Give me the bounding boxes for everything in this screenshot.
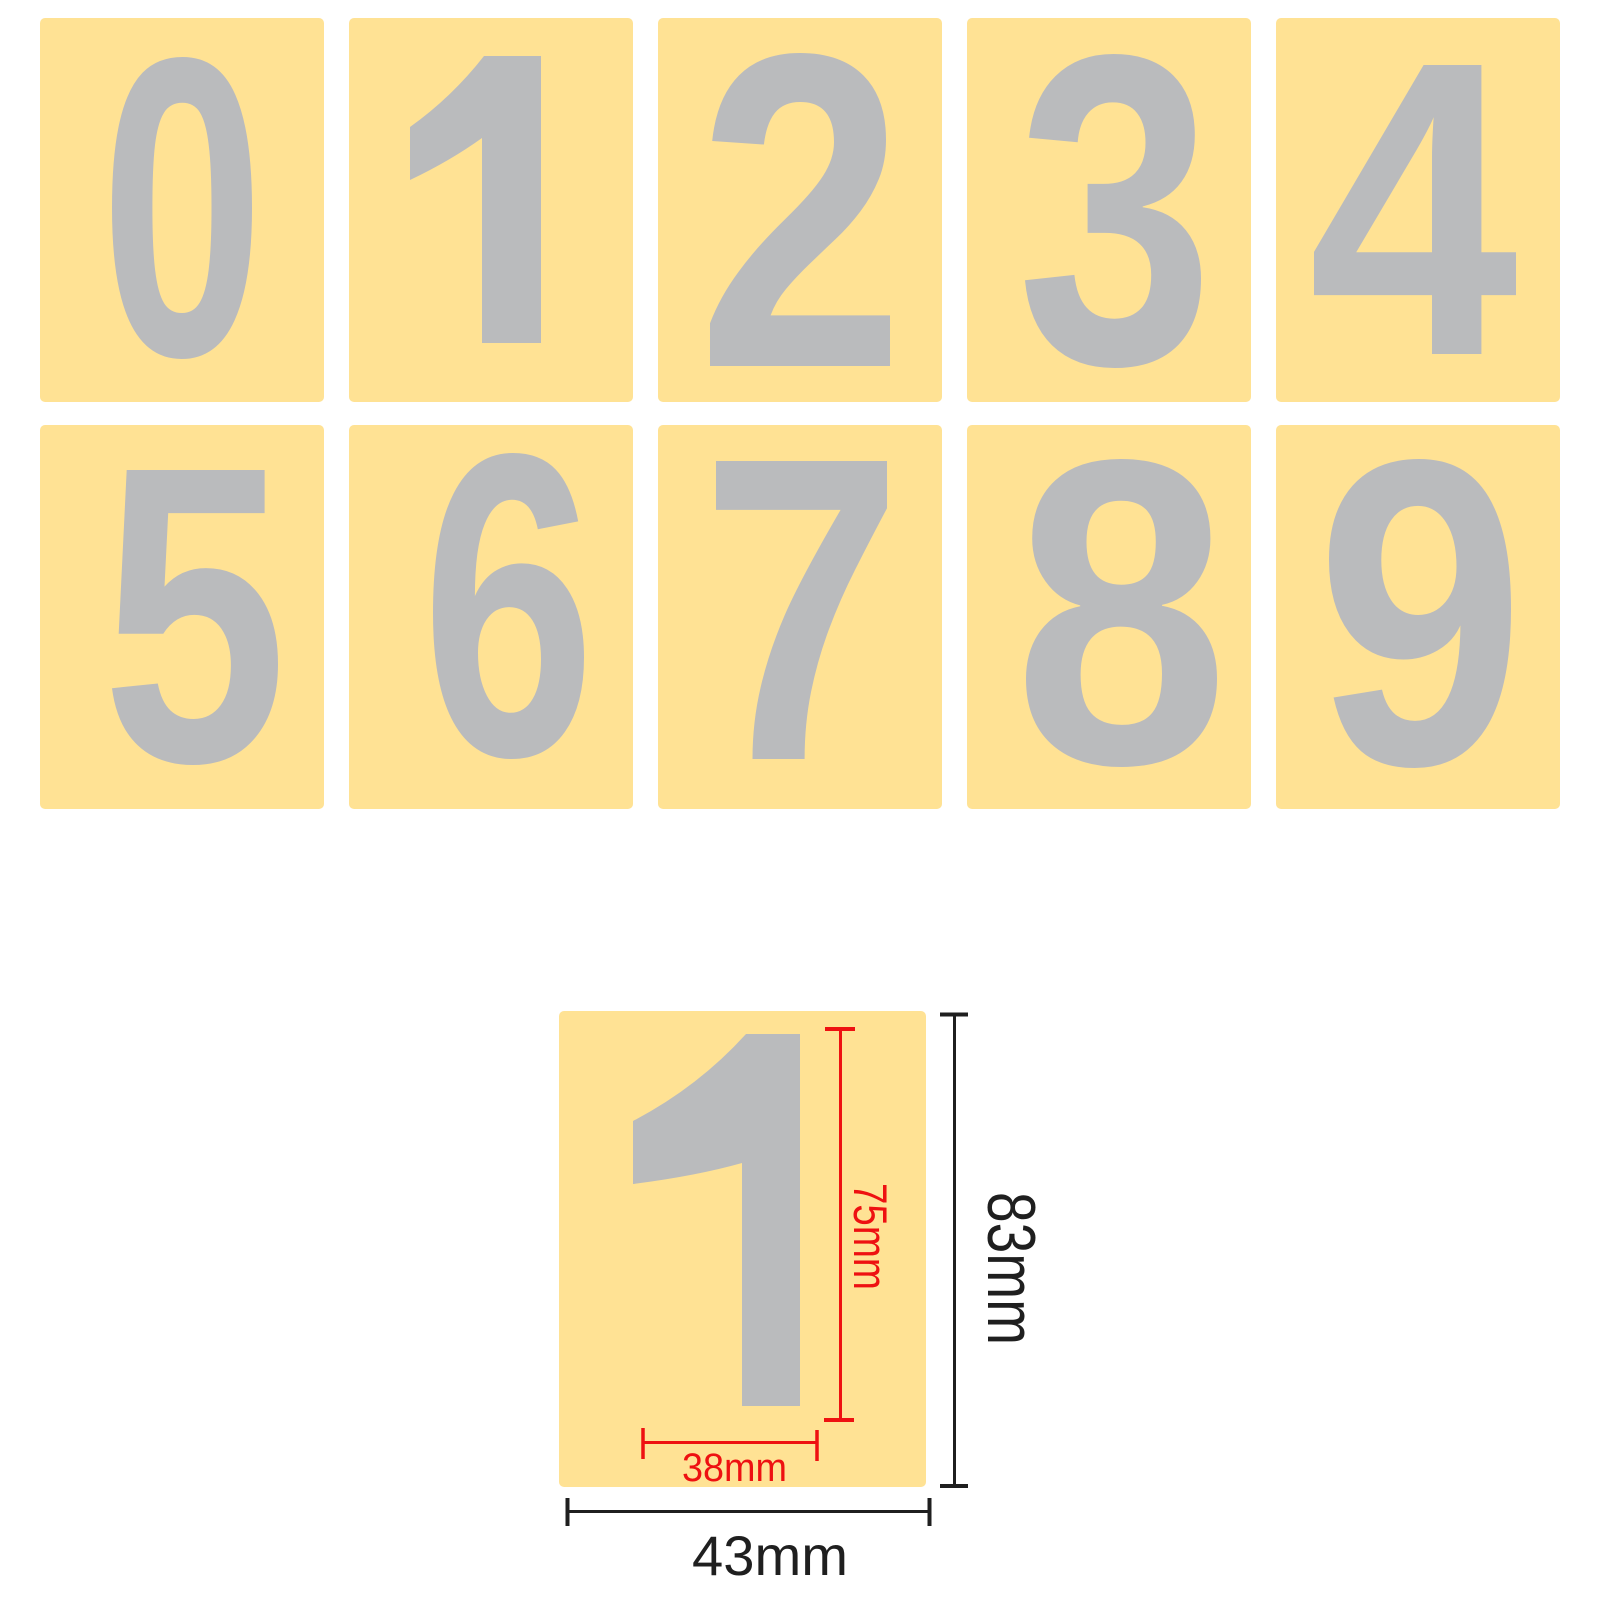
svg-text:75mm: 75mm — [844, 1183, 897, 1290]
svg-text:83mm: 83mm — [973, 1192, 1049, 1345]
svg-text:43mm: 43mm — [692, 1524, 848, 1587]
svg-text:38mm: 38mm — [682, 1446, 787, 1490]
